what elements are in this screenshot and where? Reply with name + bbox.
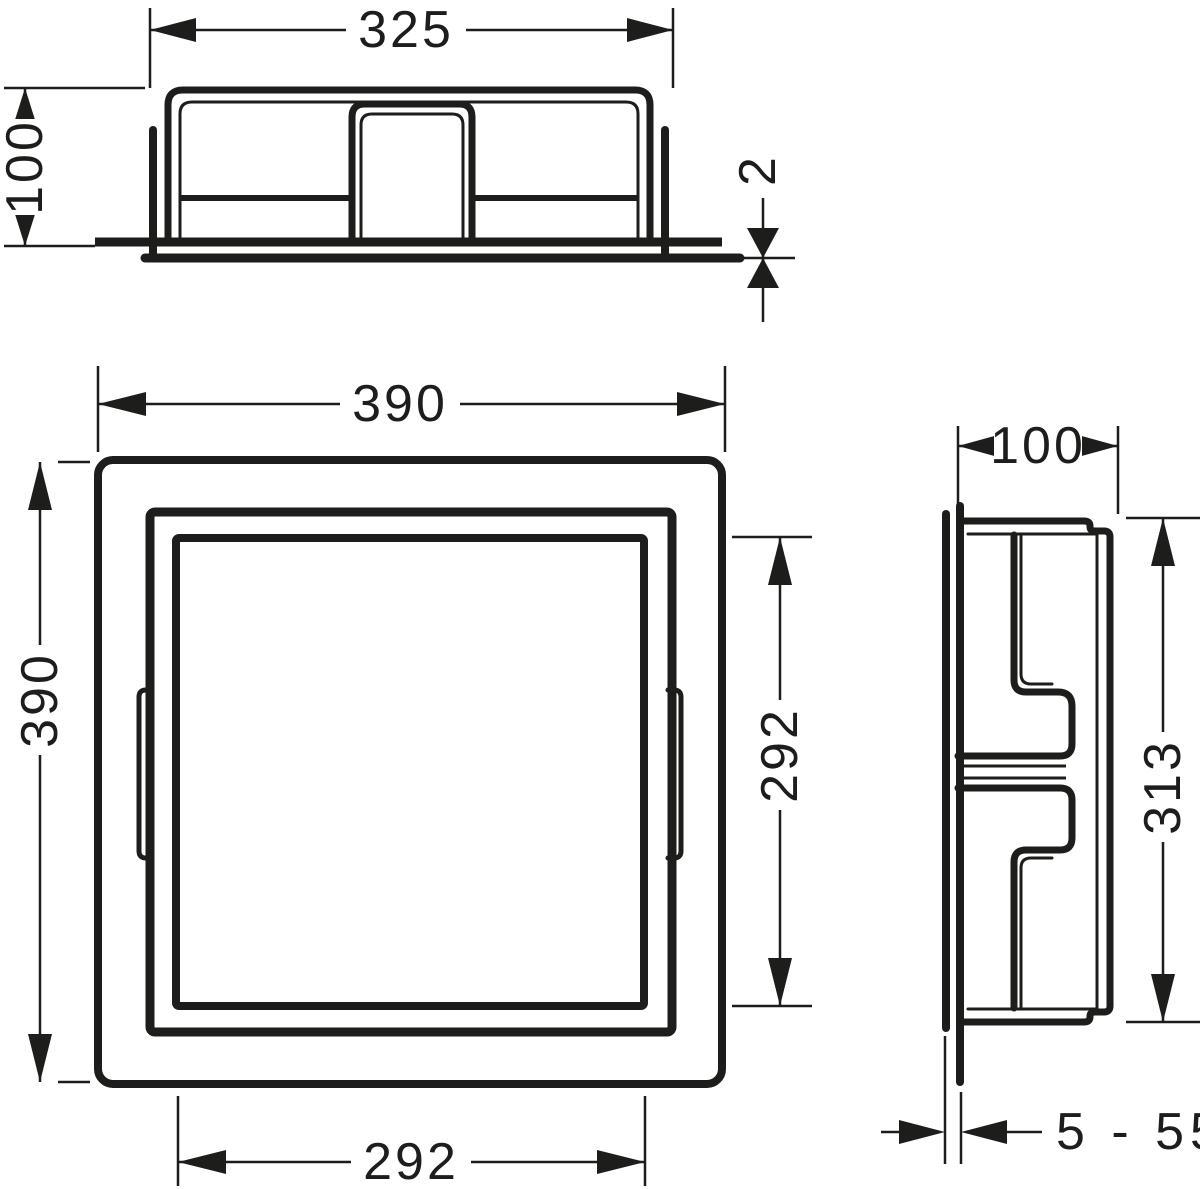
top-view-mounting-tab-inner-line — [361, 114, 463, 240]
side-view-cavity-upper-inner-line — [1021, 535, 1052, 684]
dim-side-box-height-label: 313 — [1134, 739, 1192, 835]
dim-side-box-height: 313 — [1126, 518, 1200, 1022]
dim-front-opening-width-label: 292 — [363, 1133, 459, 1189]
dim-top-width-arrow-right — [627, 18, 673, 42]
dim-front-outer-width-label: 390 — [352, 375, 448, 433]
top-view-housing-inner-line — [180, 102, 638, 241]
dim-frame-thickness: 2 — [729, 154, 795, 322]
dim-front-outer-height-arrow-bottom — [28, 1034, 52, 1082]
top-view — [95, 90, 740, 258]
dim-front-opening-width: 292 — [178, 1096, 645, 1189]
dim-front-opening-height-arrow-top — [768, 537, 792, 585]
dim-front-outer-width-arrow-right — [677, 392, 725, 416]
dim-side-install-range: 5 - 55 — [881, 1036, 1200, 1164]
dim-frame-thickness-label: 2 — [729, 154, 787, 186]
dim-side-box-height-arrow-top — [1151, 518, 1175, 566]
side-view-cavity-lower-inner-line — [1021, 858, 1052, 1008]
dim-front-opening-height-arrow-bottom — [768, 958, 792, 1006]
front-view-outer-frame — [98, 460, 722, 1084]
front-view-opening — [176, 538, 644, 1006]
dim-side-install-range-label: 5 - 55 — [1056, 1103, 1200, 1161]
dim-front-opening-width-arrow-right — [597, 1150, 645, 1174]
side-view — [946, 506, 1110, 1082]
side-view-cavity-lower-profile — [958, 788, 1072, 1008]
dim-top-depth-arrow-bottom — [14, 211, 36, 246]
dim-side-depth-label: 100 — [990, 417, 1086, 475]
dim-top-depth-arrow-top — [14, 88, 36, 123]
side-view-body-outline — [960, 521, 1110, 1022]
dim-top-width-arrow-left — [150, 18, 196, 42]
dim-top-width-label: 325 — [358, 1, 454, 59]
dim-front-outer-width: 390 — [98, 366, 725, 452]
side-view-body-inner-line — [968, 534, 1097, 1009]
dim-front-outer-height: 390 — [11, 462, 90, 1082]
dim-side-depth: 100 — [958, 417, 1118, 514]
dim-front-opening-height: 292 — [732, 537, 812, 1006]
wall-niche-dimension-drawing: 325 100 2 390 — [0, 0, 1200, 1189]
technical-drawing-page: 325 100 2 390 — [0, 0, 1200, 1189]
dim-frame-thickness-arrow-upper — [747, 228, 779, 258]
dim-front-outer-height-label: 390 — [11, 652, 69, 748]
dim-side-install-range-arrow-right — [961, 1120, 1007, 1144]
side-view-cavity-upper-profile — [958, 535, 1072, 756]
top-view-mounting-tab-outline — [352, 104, 472, 240]
front-view — [98, 460, 722, 1084]
dim-top-depth: 100 — [0, 88, 145, 246]
dim-front-opening-height-label: 292 — [751, 707, 809, 803]
dim-top-width: 325 — [150, 1, 673, 88]
dim-top-depth-label: 100 — [0, 119, 54, 215]
dim-front-outer-width-arrow-left — [98, 392, 146, 416]
dim-frame-thickness-arrow-lower — [747, 258, 779, 288]
dim-side-box-height-arrow-bottom — [1151, 974, 1175, 1022]
dim-front-outer-height-arrow-top — [28, 462, 52, 510]
front-view-box-edge — [150, 512, 672, 1032]
dim-front-opening-width-arrow-left — [178, 1150, 226, 1174]
dim-side-install-range-arrow-left — [899, 1120, 945, 1144]
